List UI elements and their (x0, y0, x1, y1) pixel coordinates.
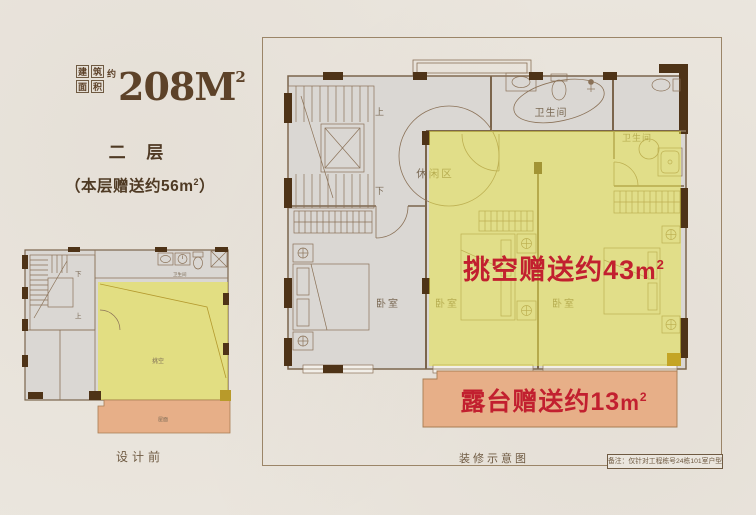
void-gift-text: 挑空赠送约43 (463, 255, 635, 285)
mini-gold-column (220, 390, 231, 401)
main-plan-frame: 上 下 休闲区 卫生间 (262, 37, 722, 466)
area-grid-char: 面 (76, 80, 89, 93)
area-unit-grid: 建 筑 面 积 (76, 65, 104, 93)
area-grid-char: 建 (76, 65, 89, 78)
void-gift-sup: 2 (657, 257, 665, 272)
terrace-gift-label: 露台赠送约13m2 (454, 382, 654, 418)
area-approx-char: 约 (107, 67, 116, 80)
bonus-prefix: （本层赠送约56 (65, 178, 179, 195)
void-gift-label: 挑空赠送约43m2 (449, 248, 679, 287)
mini-floor-plan: 下 上 卫生间 挑空 屋面 (12, 243, 234, 443)
mini-down-label: 下 (75, 270, 82, 278)
shower-head (589, 80, 594, 85)
bathroom1-label: 卫生间 (535, 106, 568, 119)
terrace-gift-sup: 2 (640, 390, 648, 404)
terrace-gift-unit: m (620, 392, 640, 415)
bedroom1-label: 卧室 (376, 297, 400, 310)
mini-void-highlight (98, 282, 228, 400)
plan-note: 备注：仅针对工程栋号24栋101室户型 (607, 454, 723, 469)
gold-column (667, 353, 681, 366)
area-grid-char: 筑 (91, 65, 104, 78)
floor-bonus-note: （本层赠送约56m2） (0, 174, 280, 196)
area-grid-char: 积 (91, 80, 104, 93)
mini-roof-label: 屋面 (158, 417, 168, 423)
building-area-title: 建 筑 面 积 约 208M2 (76, 57, 245, 107)
bonus-suffix: ） (199, 178, 215, 195)
mini-void-label: 挑空 (152, 357, 164, 365)
floor-title: 二 层 (0, 138, 280, 163)
area-value: 208M2 (118, 57, 245, 107)
area-superscript: 2 (235, 68, 244, 86)
mini-bathroom-label: 卫生间 (173, 271, 187, 278)
planter (413, 60, 531, 76)
mini-up-label: 上 (75, 311, 82, 320)
bonus-unit: m (179, 178, 193, 195)
plan-caption: 装修示意图 (459, 450, 529, 466)
mini-plan-caption: 设计前 (0, 448, 280, 465)
stairs-down-label: 下 (375, 186, 384, 196)
void-gift-unit: m (635, 258, 656, 284)
terrace-gift-text: 露台赠送约13 (460, 388, 620, 416)
stairs-up-label: 上 (375, 107, 384, 117)
